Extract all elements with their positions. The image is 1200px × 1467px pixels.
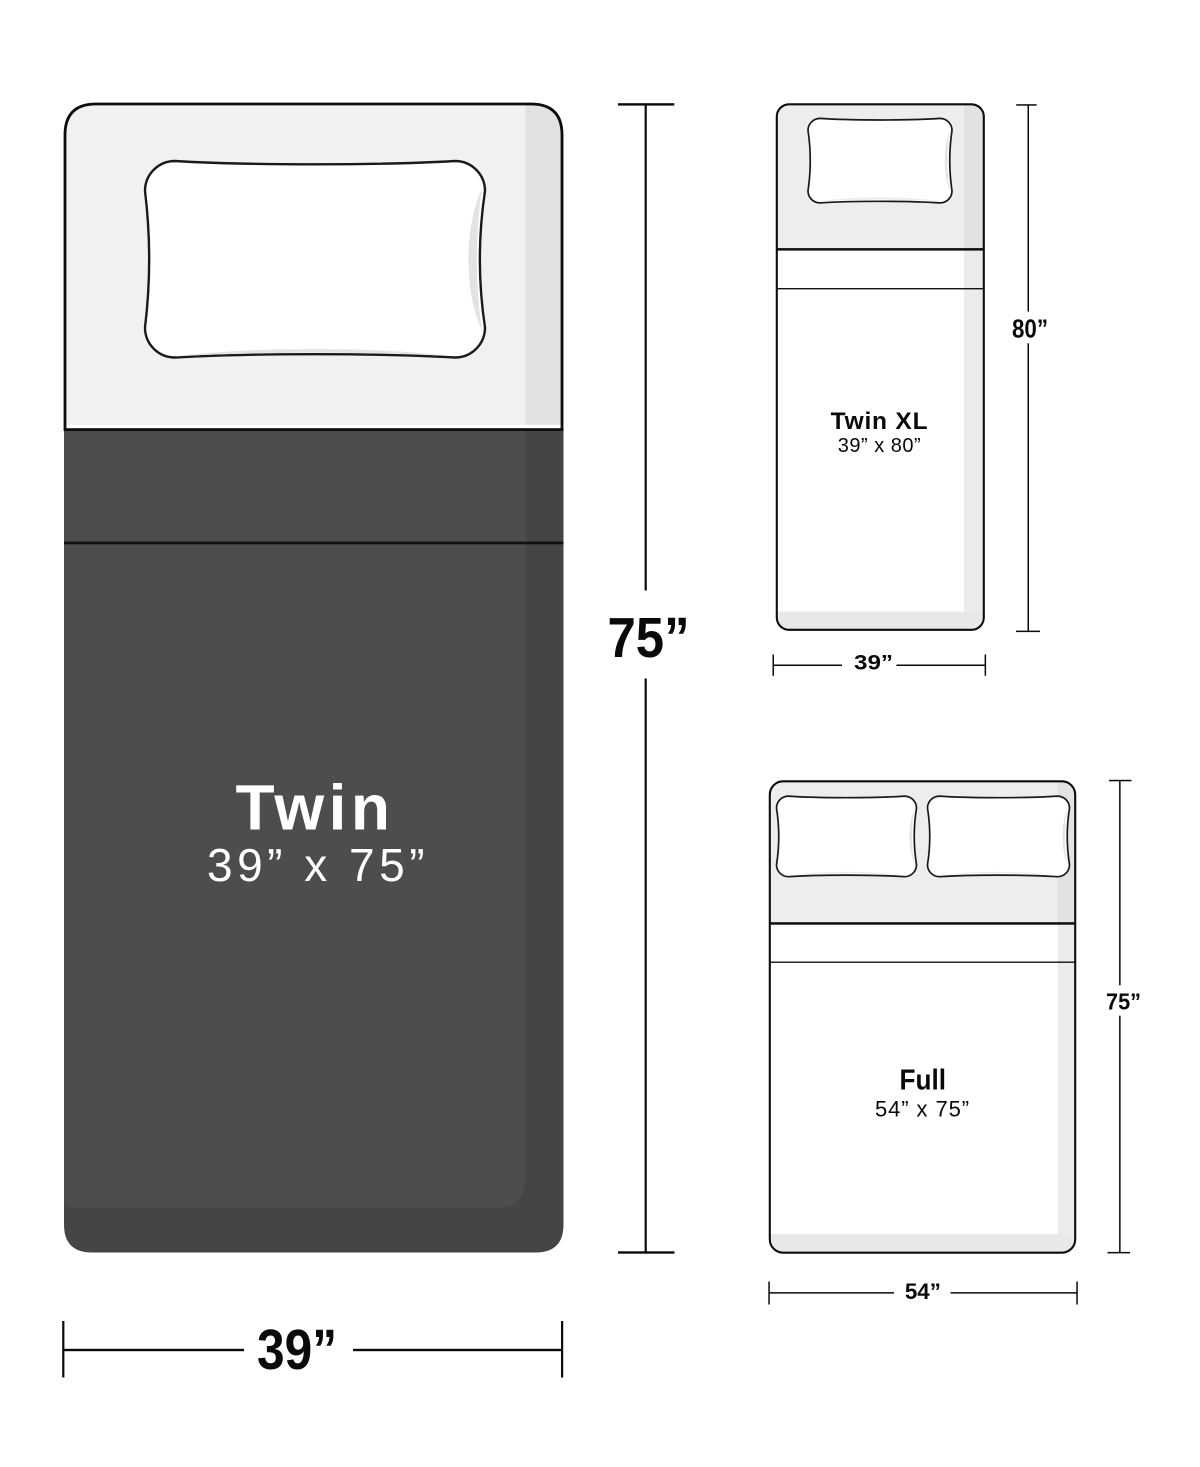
svg-text:Full: Full (900, 1065, 947, 1097)
svg-text:75”: 75” (608, 606, 690, 670)
svg-text:Twin: Twin (236, 772, 395, 844)
svg-text:75”: 75” (1106, 989, 1141, 1015)
svg-text:39”: 39” (854, 651, 893, 675)
svg-text:54”: 54” (905, 1279, 941, 1304)
svg-text:Twin XL: Twin XL (831, 408, 929, 435)
svg-text:54” x 75”: 54” x 75” (875, 1097, 970, 1122)
svg-text:80”: 80” (1012, 314, 1048, 344)
svg-text:39” x 75”: 39” x 75” (207, 839, 429, 891)
svg-text:39” x 80”: 39” x 80” (838, 435, 921, 457)
svg-text:39”: 39” (257, 1318, 337, 1382)
